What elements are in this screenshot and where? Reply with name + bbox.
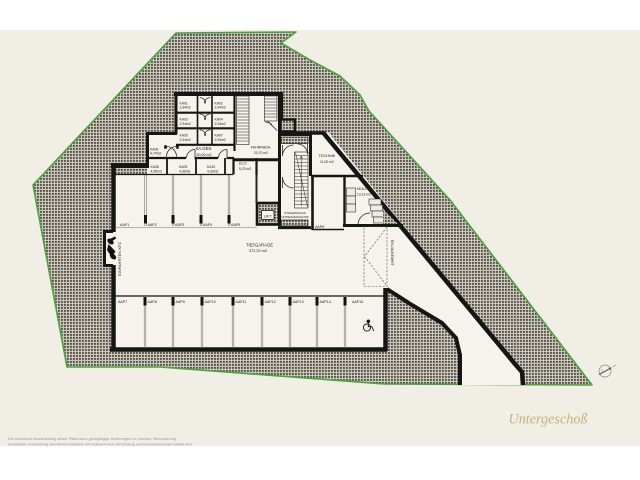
svg-text:AAP5: AAP5 <box>231 223 240 227</box>
svg-text:AAP15: AAP15 <box>352 300 363 304</box>
svg-text:Installation, Ausstattung und: Installation, Ausstattung und Wohnnutzfl… <box>8 443 192 447</box>
svg-text:4,74m2: 4,74m2 <box>150 152 161 156</box>
svg-text:ELO: ELO <box>239 162 247 166</box>
svg-text:AAP13: AAP13 <box>293 300 304 304</box>
svg-text:AAP6: AAP6 <box>315 225 324 229</box>
svg-text:AAP7: AAP7 <box>118 300 127 304</box>
svg-text:4,30m2: 4,30m2 <box>179 169 190 173</box>
svg-text:AAP4: AAP4 <box>203 223 212 227</box>
svg-text:UNTERGESCHOSS: UNTERGESCHOSS <box>281 215 308 219</box>
svg-text:EIN-/AUSFAHRT: EIN-/AUSFAHRT <box>390 240 394 266</box>
svg-text:KA.GES.: KA.GES. <box>196 146 213 151</box>
svg-text:2,94m2: 2,94m2 <box>180 122 191 126</box>
svg-text:AAP2: AAP2 <box>148 223 157 227</box>
svg-text:372,20 m2: 372,20 m2 <box>249 249 267 253</box>
svg-text:50,00 m2: 50,00 m2 <box>197 153 212 157</box>
svg-text:11,00 m2: 11,00 m2 <box>320 160 334 164</box>
svg-text:AAP11: AAP11 <box>236 300 247 304</box>
svg-text:Untergeschoß: Untergeschoß <box>508 412 587 428</box>
svg-text:2,94m2: 2,94m2 <box>180 106 191 110</box>
svg-text:LIFT: LIFT <box>264 214 273 219</box>
svg-text:2,94m2: 2,94m2 <box>180 138 191 142</box>
svg-text:AAP10: AAP10 <box>205 300 216 304</box>
svg-text:AAP8: AAP8 <box>148 300 157 304</box>
svg-text:9,23 m2: 9,23 m2 <box>239 167 251 171</box>
svg-text:13,13 m2: 13,13 m2 <box>357 193 371 197</box>
svg-text:AAP3: AAP3 <box>175 223 184 227</box>
svg-text:AAP14: AAP14 <box>320 300 331 304</box>
svg-text:2,94m2: 2,94m2 <box>215 106 226 110</box>
svg-text:4,55m2: 4,55m2 <box>151 169 162 173</box>
svg-text:AAP1: AAP1 <box>120 223 129 227</box>
svg-text:EINFAHRTEN KFZ: EINFAHRTEN KFZ <box>117 242 122 276</box>
svg-text:TIEFGARAGE: TIEFGARAGE <box>246 242 273 247</box>
svg-text:4,30m2: 4,30m2 <box>207 169 218 173</box>
svg-text:23,70 m2: 23,70 m2 <box>254 151 268 155</box>
svg-text:AAP12: AAP12 <box>265 300 276 304</box>
svg-text:FAHRRADA.: FAHRRADA. <box>251 146 272 150</box>
svg-text:2,94m2: 2,94m2 <box>215 138 226 142</box>
svg-text:AAP9: AAP9 <box>176 300 185 304</box>
svg-text:TECHNIK: TECHNIK <box>319 154 336 158</box>
svg-text:2,94m2: 2,94m2 <box>215 122 226 126</box>
svg-text:MÜLLR.: MÜLLR. <box>357 187 371 191</box>
svg-text:Die technische Ausarbeitung di: Die technische Ausarbeitung dieser Pläne… <box>8 437 176 441</box>
